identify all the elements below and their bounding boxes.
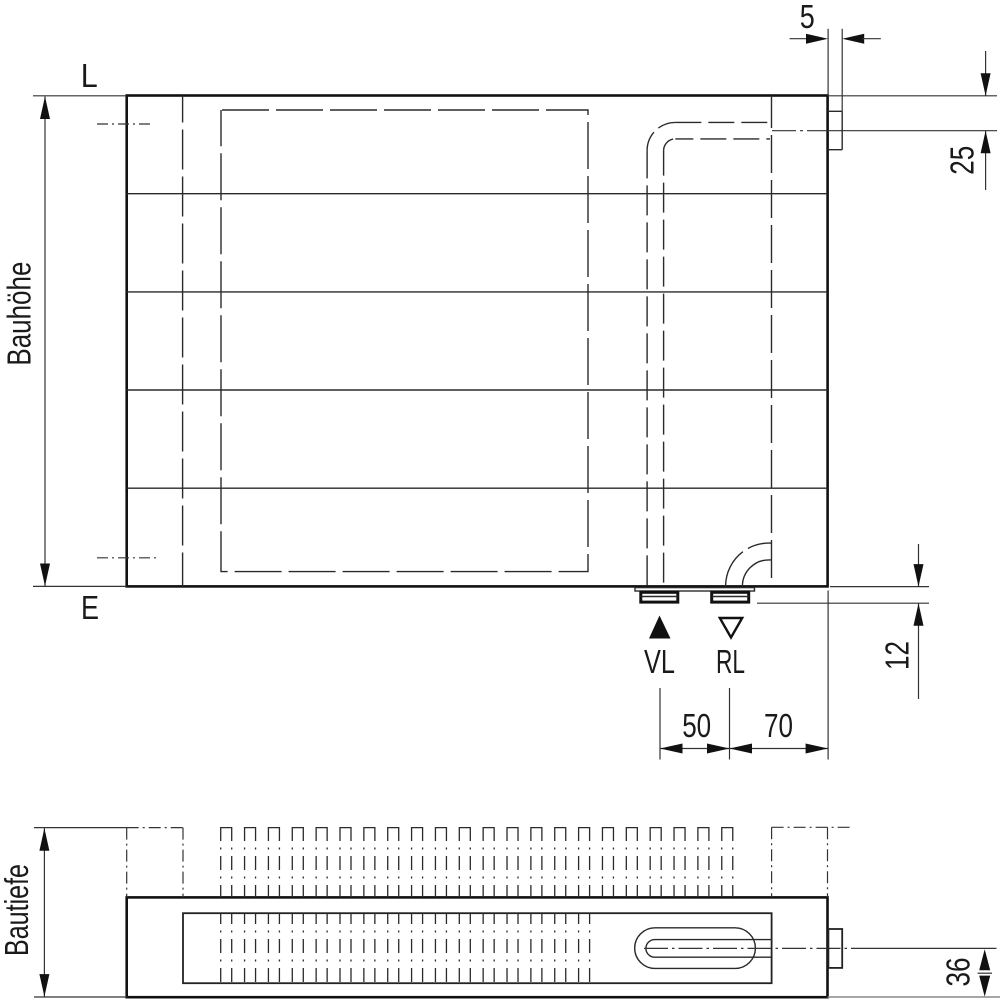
svg-text:Bauhöhe: Bauhöhe <box>1 262 38 366</box>
svg-text:5: 5 <box>800 0 815 35</box>
svg-text:25: 25 <box>943 146 980 175</box>
svg-text:50: 50 <box>682 707 711 744</box>
svg-text:VL: VL <box>644 643 675 680</box>
svg-text:RL: RL <box>716 643 745 680</box>
svg-text:L: L <box>81 57 98 94</box>
svg-text:70: 70 <box>764 707 793 744</box>
svg-text:36: 36 <box>940 958 977 987</box>
svg-text:12: 12 <box>879 641 916 670</box>
svg-text:Bautiefe: Bautiefe <box>0 864 35 956</box>
svg-text:E: E <box>81 589 99 626</box>
